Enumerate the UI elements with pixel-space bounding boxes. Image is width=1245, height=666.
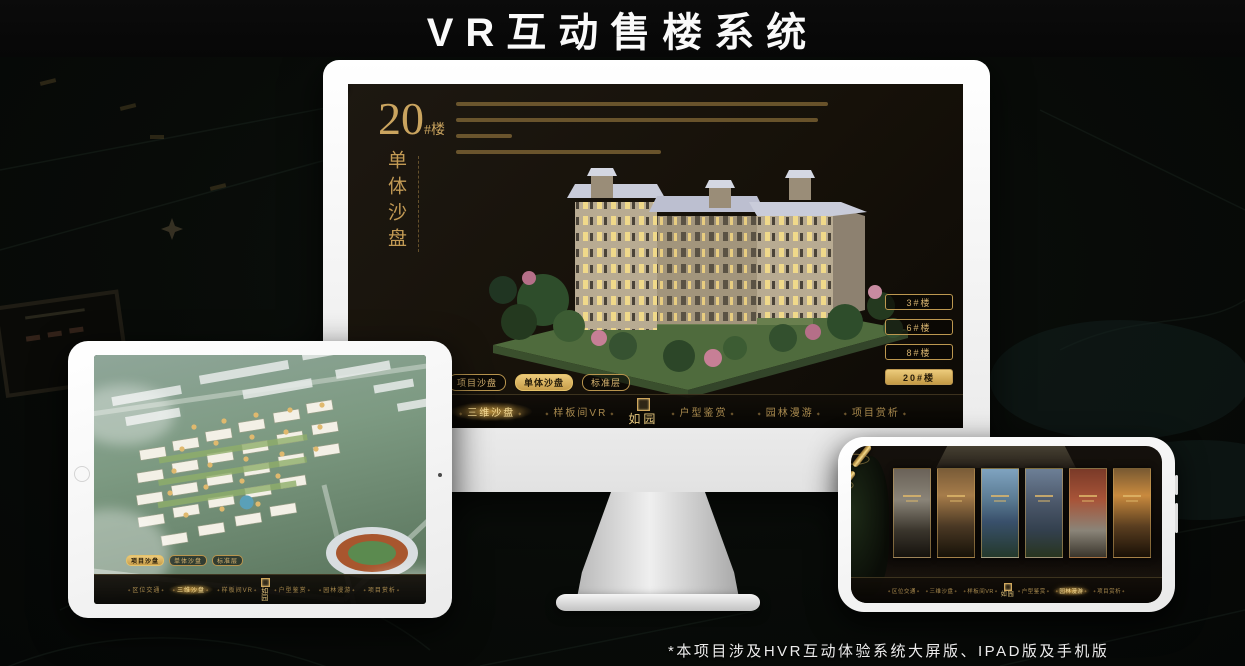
brand-name: 如园 [261,588,270,602]
phone-menu-garden-roam[interactable]: 园林漫游 [1053,586,1091,596]
tablet-menu-floorplan[interactable]: 户型鉴赏 [270,584,315,595]
tablet-menubar: 区位交通 三维沙盘 样板间VR 如园 户型鉴赏 园林漫游 项目赏析 [94,574,426,604]
ruyuan-seal-icon [1004,583,1012,591]
gallery-panel-2[interactable] [937,468,975,558]
monitor-stand-neck [577,492,739,598]
tablet-menu-3d-sandtable[interactable]: 三维沙盘 [169,584,214,595]
tab-single-sandtable[interactable]: 单体沙盘 [515,374,573,391]
gallery-panel-3[interactable] [981,468,1019,558]
floor-selector: 3#楼 6#楼 8#楼 20#楼 [885,294,953,394]
tablet-menu-showroom-vr[interactable]: 样板间VR [213,584,261,595]
tablet-screen: 项目沙盘 单体沙盘 标准层 区位交通 三维沙盘 样板间VR 如园 户型鉴赏 园林… [94,355,426,604]
building-model-image [483,150,913,400]
floor-button-3[interactable]: 3#楼 [885,294,953,310]
phone-device: 区位交通 三维沙盘 样板间VR 如园 户型鉴赏 园林漫游 项目赏析 [838,437,1175,612]
tablet-tab-standard-floor[interactable]: 标准层 [212,555,243,566]
menu-floorplan[interactable]: 户型鉴赏 [662,402,744,421]
desktop-tabs: 项目沙盘 单体沙盘 标准层 [448,374,630,391]
phone-volume-button[interactable] [1175,503,1178,533]
ruyuan-seal-icon [261,578,270,587]
menu-showroom-vr[interactable]: 样板间VR [536,402,624,421]
phone-side-button[interactable] [1175,475,1178,495]
brand-logo: 如园 [628,398,658,425]
plant-silhouette [851,456,889,596]
phone-menubar: 区位交通 三维沙盘 样板间VR 如园 户型鉴赏 园林漫游 项目赏析 [851,577,1162,603]
menu-garden-roam[interactable]: 园林漫游 [749,402,831,421]
menu-scroll-handle[interactable] [348,84,350,125]
brand-name: 如园 [628,413,658,425]
footnote-text: *本项目涉及HVR互动体验系统大屏版、IPAD版及手机版 [668,640,1109,661]
phone-screen: 区位交通 三维沙盘 样板间VR 如园 户型鉴赏 园林漫游 项目赏析 [851,446,1162,603]
tab-project-sandtable[interactable]: 项目沙盘 [448,374,506,391]
floor-button-8[interactable]: 8#楼 [885,344,953,360]
block-number: 20 [378,93,424,144]
page-title: VR互动售楼系统 [427,0,819,58]
ruyuan-seal-icon [637,398,650,411]
vertical-caption-line [418,156,419,252]
tablet-device: 项目沙盘 单体沙盘 标准层 区位交通 三维沙盘 样板间VR 如园 户型鉴赏 园林… [68,341,452,618]
gallery-panel-5[interactable] [1069,468,1107,558]
tablet-brand-logo: 如园 [261,578,270,602]
phone-menu-location-traffic[interactable]: 区位交通 [885,586,923,596]
title-band: VR互动售楼系统 [0,0,1245,57]
tablet-home-button[interactable] [74,466,90,482]
floor-button-20[interactable]: 20#楼 [885,369,953,385]
block-number-suffix: #楼 [424,123,445,138]
tablet-menu-location-traffic[interactable]: 区位交通 [124,584,169,595]
block-headline: 20#楼 [378,96,445,142]
masterplan-aerial-image [94,355,426,604]
phone-menu-floorplan[interactable]: 户型鉴赏 [1015,586,1053,596]
tablet-menu-garden-roam[interactable]: 园林漫游 [315,584,360,595]
menu-3d-sandtable[interactable]: 三维沙盘 [450,402,532,421]
tab-standard-floor[interactable]: 标准层 [582,374,630,391]
phone-menu-showroom-vr[interactable]: 样板间VR [960,586,1000,596]
phone-brand-logo: 如园 [1001,583,1015,598]
ceiling-light [936,446,1076,468]
floor-button-6[interactable]: 6#楼 [885,319,953,335]
menu-project-gallery[interactable]: 项目赏析 [835,402,917,421]
brand-name: 如园 [1001,592,1015,598]
monitor-stand-base [556,594,760,611]
gallery-panel-1[interactable] [893,468,931,558]
gallery-panel-4[interactable] [1025,468,1063,558]
gallery-panel-6[interactable] [1113,468,1151,558]
phone-menu-project-gallery[interactable]: 项目赏析 [1090,586,1128,596]
tablet-tab-single-sandtable[interactable]: 单体沙盘 [169,555,207,566]
tablet-tab-project-sandtable[interactable]: 项目沙盘 [126,555,164,566]
phone-menu-3d-sandtable[interactable]: 三维沙盘 [923,586,961,596]
block-subtitle-vertical: 单体沙盘 [382,150,409,280]
tablet-menu-project-gallery[interactable]: 项目赏析 [360,584,405,595]
tablet-tabs: 项目沙盘 单体沙盘 标准层 [126,555,243,566]
tablet-camera-icon [438,473,442,477]
